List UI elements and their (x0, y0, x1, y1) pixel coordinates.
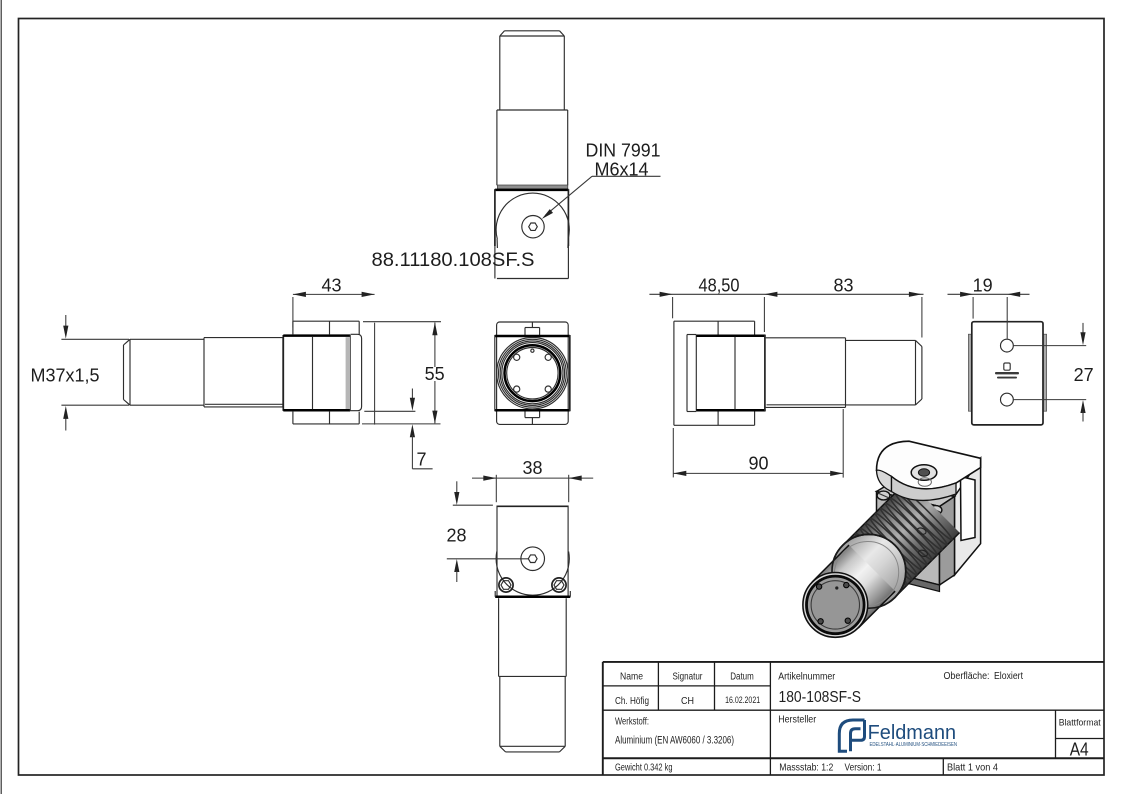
svg-text:Blatt 1 von 4: Blatt 1 von 4 (947, 763, 998, 774)
svg-text:28: 28 (447, 526, 467, 546)
svg-text:Werkstoff:: Werkstoff: (615, 717, 649, 728)
svg-text:43: 43 (321, 276, 341, 296)
svg-text:Hersteller: Hersteller (778, 715, 817, 726)
svg-text:88.11180.108SF.S: 88.11180.108SF.S (372, 250, 535, 271)
svg-text:19: 19 (973, 276, 993, 296)
svg-text:Feldmann: Feldmann (868, 722, 957, 744)
svg-text:Version: 1: Version: 1 (845, 763, 882, 774)
svg-text:55: 55 (425, 364, 445, 384)
svg-text:Oberfläche:: Oberfläche: (944, 671, 990, 682)
svg-text:Artikelnummer: Artikelnummer (778, 672, 836, 683)
svg-text:Eloxiert: Eloxiert (994, 671, 1023, 682)
svg-text:180-108SF-S: 180-108SF-S (779, 689, 862, 706)
svg-text:A4: A4 (1070, 740, 1089, 760)
svg-text:CH: CH (681, 696, 694, 707)
svg-text:M6x14: M6x14 (595, 158, 649, 179)
svg-text:Signatur: Signatur (673, 672, 704, 683)
svg-text:EDELSTAHL·ALUMINIUM·SCHMIEDEEI: EDELSTAHL·ALUMINIUM·SCHMIEDEEISEN (870, 742, 958, 748)
svg-text:16.02.2021: 16.02.2021 (725, 695, 760, 706)
svg-text:27: 27 (1074, 365, 1094, 385)
svg-text:Aluminium (EN AW6060 / 3.3206): Aluminium (EN AW6060 / 3.3206) (615, 735, 734, 747)
svg-text:48,50: 48,50 (699, 276, 740, 296)
svg-text:M37x1,5: M37x1,5 (31, 365, 100, 386)
svg-text:Datum: Datum (730, 672, 754, 683)
svg-text:7: 7 (417, 450, 427, 470)
svg-text:Massstab: 1:2: Massstab: 1:2 (779, 763, 833, 774)
svg-text:90: 90 (748, 454, 768, 474)
svg-text:Ch. Höfig: Ch. Höfig (615, 696, 649, 707)
svg-text:38: 38 (522, 458, 542, 478)
svg-text:Name: Name (620, 672, 643, 683)
svg-text:83: 83 (833, 276, 853, 296)
svg-text:Gewicht 0.342 kg: Gewicht 0.342 kg (615, 763, 673, 774)
svg-text:Blattformat: Blattformat (1059, 718, 1101, 729)
